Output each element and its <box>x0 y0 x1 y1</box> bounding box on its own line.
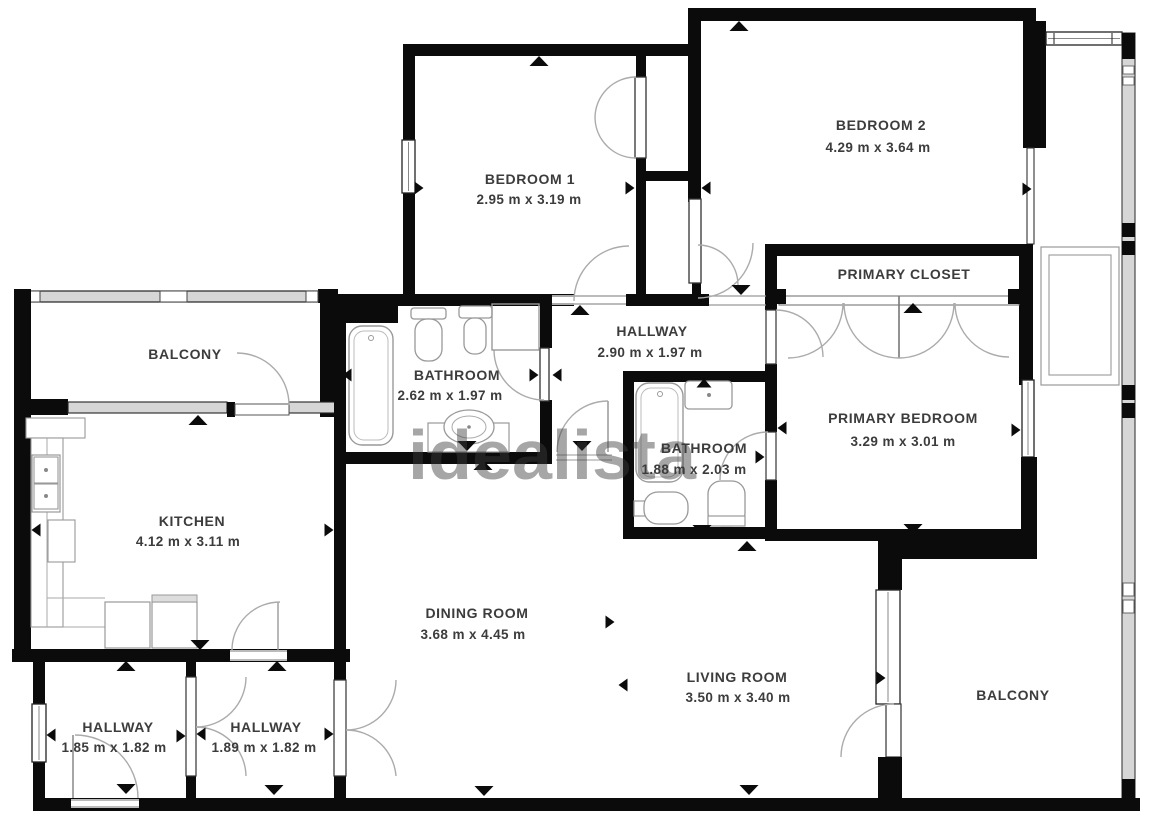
svg-text:BEDROOM 2: BEDROOM 2 <box>836 117 926 133</box>
svg-text:LIVING ROOM: LIVING ROOM <box>687 669 788 685</box>
svg-text:DINING ROOM: DINING ROOM <box>425 605 528 621</box>
svg-text:HALLWAY: HALLWAY <box>82 719 153 735</box>
svg-text:KITCHEN: KITCHEN <box>159 513 225 529</box>
svg-text:BALCONY: BALCONY <box>976 687 1049 703</box>
svg-text:1.89 m x 1.82 m: 1.89 m x 1.82 m <box>211 740 316 755</box>
svg-text:PRIMARY CLOSET: PRIMARY CLOSET <box>838 266 971 282</box>
svg-text:BALCONY: BALCONY <box>148 346 221 362</box>
svg-text:1.85 m x 1.82 m: 1.85 m x 1.82 m <box>61 740 166 755</box>
svg-text:3.68 m x 4.45 m: 3.68 m x 4.45 m <box>420 627 525 642</box>
svg-text:idealista: idealista <box>408 416 697 494</box>
svg-text:3.50 m x 3.40 m: 3.50 m x 3.40 m <box>685 690 790 705</box>
svg-text:4.29 m x 3.64 m: 4.29 m x 3.64 m <box>825 140 930 155</box>
svg-text:HALLWAY: HALLWAY <box>230 719 301 735</box>
svg-text:4.12 m x 3.11 m: 4.12 m x 3.11 m <box>136 534 240 549</box>
svg-text:3.29 m x 3.01 m: 3.29 m x 3.01 m <box>850 434 955 449</box>
svg-text:BEDROOM 1: BEDROOM 1 <box>485 171 575 187</box>
svg-text:2.90 m x 1.97 m: 2.90 m x 1.97 m <box>597 345 702 360</box>
svg-text:HALLWAY: HALLWAY <box>616 323 687 339</box>
svg-text:BATHROOM: BATHROOM <box>414 367 500 383</box>
svg-text:2.95 m x 3.19 m: 2.95 m x 3.19 m <box>476 192 581 207</box>
svg-text:2.62 m x 1.97 m: 2.62 m x 1.97 m <box>397 388 502 403</box>
svg-text:PRIMARY BEDROOM: PRIMARY BEDROOM <box>828 410 978 426</box>
